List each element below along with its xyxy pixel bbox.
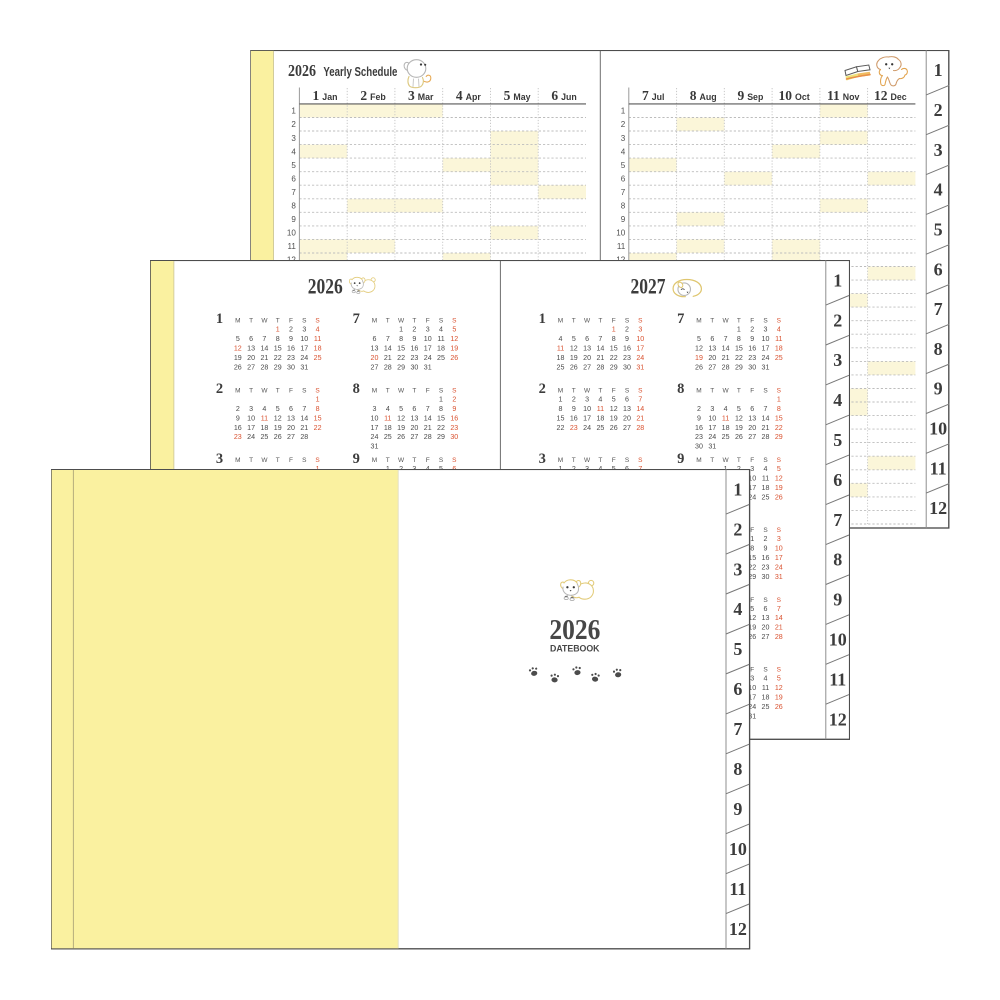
svg-text:9: 9 bbox=[291, 215, 296, 224]
svg-text:22: 22 bbox=[437, 424, 445, 432]
svg-text:16: 16 bbox=[287, 345, 295, 353]
svg-text:20: 20 bbox=[748, 424, 756, 432]
svg-text:26: 26 bbox=[274, 433, 282, 441]
svg-text:T: T bbox=[386, 387, 390, 394]
svg-text:T: T bbox=[249, 318, 253, 325]
svg-text:2: 2 bbox=[412, 326, 416, 334]
svg-text:T: T bbox=[710, 387, 714, 394]
svg-text:M: M bbox=[372, 457, 377, 464]
svg-text:30: 30 bbox=[410, 363, 418, 371]
svg-text:1: 1 bbox=[216, 311, 223, 327]
svg-text:15: 15 bbox=[274, 345, 282, 353]
svg-text:29: 29 bbox=[735, 363, 743, 371]
svg-text:21: 21 bbox=[384, 354, 392, 362]
svg-text:18: 18 bbox=[260, 424, 268, 432]
svg-text:5: 5 bbox=[934, 220, 943, 240]
svg-text:3: 3 bbox=[733, 559, 742, 579]
svg-text:18: 18 bbox=[762, 694, 770, 702]
svg-text:23: 23 bbox=[762, 563, 770, 571]
svg-text:8: 8 bbox=[733, 759, 742, 779]
svg-text:19: 19 bbox=[735, 424, 743, 432]
svg-text:12: 12 bbox=[729, 919, 747, 939]
svg-text:1: 1 bbox=[833, 270, 842, 290]
svg-text:30: 30 bbox=[287, 363, 295, 371]
svg-text:27: 27 bbox=[247, 363, 255, 371]
svg-text:5: 5 bbox=[291, 161, 296, 170]
svg-text:9: 9 bbox=[833, 590, 842, 610]
svg-text:S: S bbox=[777, 457, 782, 464]
svg-text:24: 24 bbox=[762, 354, 770, 362]
svg-text:19: 19 bbox=[234, 354, 242, 362]
svg-text:5: 5 bbox=[777, 675, 781, 683]
svg-text:9: 9 bbox=[737, 88, 744, 103]
svg-text:24: 24 bbox=[708, 433, 716, 441]
svg-text:3: 3 bbox=[291, 134, 296, 143]
svg-text:15: 15 bbox=[397, 345, 405, 353]
svg-text:9: 9 bbox=[621, 215, 626, 224]
svg-text:T: T bbox=[737, 387, 741, 394]
svg-text:18: 18 bbox=[775, 345, 783, 353]
svg-text:S: S bbox=[763, 527, 768, 534]
svg-text:22: 22 bbox=[775, 424, 783, 432]
svg-text:13: 13 bbox=[762, 614, 770, 622]
svg-text:S: S bbox=[777, 387, 782, 394]
svg-text:5: 5 bbox=[777, 465, 781, 473]
svg-text:3: 3 bbox=[934, 140, 943, 160]
svg-text:9: 9 bbox=[452, 405, 456, 413]
svg-text:7: 7 bbox=[833, 510, 842, 530]
svg-text:5: 5 bbox=[276, 405, 280, 413]
svg-text:T: T bbox=[598, 457, 602, 464]
svg-text:1: 1 bbox=[621, 107, 626, 116]
svg-text:10: 10 bbox=[287, 229, 297, 238]
svg-text:14: 14 bbox=[636, 405, 644, 413]
svg-text:6: 6 bbox=[289, 405, 293, 413]
svg-text:F: F bbox=[289, 387, 293, 394]
svg-text:S: S bbox=[625, 457, 630, 464]
svg-text:26: 26 bbox=[397, 433, 405, 441]
svg-text:6: 6 bbox=[733, 679, 742, 699]
svg-text:T: T bbox=[710, 318, 714, 325]
svg-text:10: 10 bbox=[762, 335, 770, 343]
svg-text:W: W bbox=[398, 318, 405, 325]
svg-text:Oct: Oct bbox=[795, 92, 810, 102]
svg-text:T: T bbox=[412, 387, 416, 394]
svg-text:11: 11 bbox=[729, 879, 746, 899]
svg-text:17: 17 bbox=[775, 554, 783, 562]
svg-text:3: 3 bbox=[302, 326, 306, 334]
svg-text:5: 5 bbox=[833, 430, 842, 450]
svg-text:T: T bbox=[276, 387, 280, 394]
svg-text:13: 13 bbox=[287, 414, 295, 422]
svg-text:T: T bbox=[249, 457, 253, 464]
svg-text:Nov: Nov bbox=[843, 92, 860, 102]
svg-text:3: 3 bbox=[585, 395, 589, 403]
svg-text:17: 17 bbox=[371, 424, 379, 432]
svg-text:23: 23 bbox=[410, 354, 418, 362]
svg-text:25: 25 bbox=[775, 354, 783, 362]
svg-text:2026: 2026 bbox=[288, 61, 316, 80]
svg-text:7: 7 bbox=[302, 405, 306, 413]
svg-text:4: 4 bbox=[724, 405, 728, 413]
svg-text:10: 10 bbox=[636, 335, 644, 343]
svg-text:21: 21 bbox=[596, 354, 604, 362]
svg-text:M: M bbox=[558, 318, 563, 325]
svg-text:1: 1 bbox=[559, 395, 563, 403]
svg-text:8: 8 bbox=[316, 405, 320, 413]
svg-text:3: 3 bbox=[373, 405, 377, 413]
svg-text:3: 3 bbox=[833, 350, 842, 370]
svg-text:28: 28 bbox=[596, 363, 604, 371]
svg-text:12: 12 bbox=[610, 405, 618, 413]
svg-text:31: 31 bbox=[708, 443, 716, 451]
svg-text:Aug: Aug bbox=[700, 92, 717, 102]
svg-text:S: S bbox=[777, 667, 782, 674]
svg-text:15: 15 bbox=[314, 414, 322, 422]
svg-text:S: S bbox=[638, 318, 643, 325]
svg-text:3: 3 bbox=[539, 451, 546, 467]
svg-text:27: 27 bbox=[410, 433, 418, 441]
svg-text:28: 28 bbox=[260, 363, 268, 371]
svg-text:3: 3 bbox=[249, 405, 253, 413]
svg-text:20: 20 bbox=[583, 354, 591, 362]
svg-text:2027: 2027 bbox=[631, 274, 666, 299]
svg-text:23: 23 bbox=[748, 354, 756, 362]
svg-text:4: 4 bbox=[934, 180, 943, 200]
svg-text:27: 27 bbox=[583, 363, 591, 371]
svg-text:20: 20 bbox=[247, 354, 255, 362]
svg-text:8: 8 bbox=[690, 88, 697, 103]
svg-text:7: 7 bbox=[262, 335, 266, 343]
svg-text:1: 1 bbox=[539, 311, 546, 327]
svg-text:F: F bbox=[750, 318, 754, 325]
svg-text:T: T bbox=[572, 387, 576, 394]
svg-text:30: 30 bbox=[762, 573, 770, 581]
svg-text:12: 12 bbox=[274, 414, 282, 422]
svg-text:9: 9 bbox=[625, 335, 629, 343]
svg-text:23: 23 bbox=[623, 354, 631, 362]
svg-text:21: 21 bbox=[775, 624, 783, 632]
svg-text:3: 3 bbox=[216, 451, 223, 467]
svg-text:W: W bbox=[398, 387, 405, 394]
svg-text:29: 29 bbox=[610, 363, 618, 371]
svg-text:25: 25 bbox=[722, 433, 730, 441]
svg-text:6: 6 bbox=[373, 335, 377, 343]
svg-text:11: 11 bbox=[557, 345, 564, 353]
svg-text:W: W bbox=[398, 457, 405, 464]
svg-text:6: 6 bbox=[621, 174, 626, 183]
svg-text:19: 19 bbox=[397, 424, 405, 432]
svg-text:9: 9 bbox=[289, 335, 293, 343]
svg-text:24: 24 bbox=[775, 563, 783, 571]
svg-text:8: 8 bbox=[353, 381, 360, 397]
svg-text:12: 12 bbox=[929, 498, 947, 518]
svg-text:11: 11 bbox=[314, 335, 321, 343]
svg-text:10: 10 bbox=[300, 335, 308, 343]
svg-text:S: S bbox=[763, 667, 768, 674]
svg-text:16: 16 bbox=[762, 554, 770, 562]
svg-text:F: F bbox=[612, 457, 616, 464]
svg-text:S: S bbox=[777, 318, 782, 325]
svg-text:12: 12 bbox=[829, 709, 847, 729]
svg-text:30: 30 bbox=[623, 363, 631, 371]
svg-text:1: 1 bbox=[291, 107, 296, 116]
svg-text:17: 17 bbox=[247, 424, 255, 432]
svg-text:26: 26 bbox=[735, 433, 743, 441]
svg-text:26: 26 bbox=[450, 354, 458, 362]
svg-text:8: 8 bbox=[439, 405, 443, 413]
svg-text:9: 9 bbox=[764, 545, 768, 553]
svg-text:S: S bbox=[315, 457, 320, 464]
svg-text:F: F bbox=[750, 387, 754, 394]
svg-text:S: S bbox=[763, 597, 768, 604]
svg-text:6: 6 bbox=[291, 174, 296, 183]
svg-text:T: T bbox=[276, 457, 280, 464]
svg-text:14: 14 bbox=[722, 345, 730, 353]
svg-text:15: 15 bbox=[557, 414, 565, 422]
svg-text:11: 11 bbox=[930, 458, 947, 478]
svg-text:20: 20 bbox=[287, 424, 295, 432]
svg-text:11: 11 bbox=[722, 414, 729, 422]
svg-text:29: 29 bbox=[437, 433, 445, 441]
svg-text:4: 4 bbox=[386, 405, 390, 413]
svg-text:2026: 2026 bbox=[549, 615, 600, 646]
svg-text:28: 28 bbox=[762, 433, 770, 441]
svg-text:3: 3 bbox=[777, 535, 781, 543]
svg-text:M: M bbox=[235, 457, 240, 464]
svg-text:11: 11 bbox=[827, 88, 840, 103]
svg-text:5: 5 bbox=[572, 335, 576, 343]
svg-text:6: 6 bbox=[249, 335, 253, 343]
svg-text:S: S bbox=[763, 457, 768, 464]
svg-text:10: 10 bbox=[929, 419, 947, 439]
svg-text:28: 28 bbox=[636, 424, 644, 432]
svg-text:21: 21 bbox=[424, 424, 432, 432]
svg-text:9: 9 bbox=[353, 451, 360, 467]
svg-text:29: 29 bbox=[775, 433, 783, 441]
svg-text:Yearly Schedule: Yearly Schedule bbox=[323, 65, 397, 79]
svg-text:S: S bbox=[302, 457, 307, 464]
svg-text:Feb: Feb bbox=[370, 92, 386, 102]
svg-text:15: 15 bbox=[735, 345, 743, 353]
svg-text:27: 27 bbox=[762, 633, 770, 641]
svg-text:10: 10 bbox=[583, 405, 591, 413]
svg-text:25: 25 bbox=[762, 703, 770, 711]
svg-text:W: W bbox=[261, 387, 268, 394]
svg-text:S: S bbox=[315, 387, 320, 394]
svg-text:6: 6 bbox=[412, 405, 416, 413]
svg-text:8: 8 bbox=[737, 335, 741, 343]
svg-text:18: 18 bbox=[557, 354, 565, 362]
svg-text:27: 27 bbox=[623, 424, 631, 432]
svg-text:19: 19 bbox=[570, 354, 578, 362]
svg-text:7: 7 bbox=[426, 405, 430, 413]
svg-text:9: 9 bbox=[697, 414, 701, 422]
svg-text:1: 1 bbox=[399, 326, 403, 334]
svg-text:9: 9 bbox=[412, 335, 416, 343]
svg-text:8: 8 bbox=[399, 335, 403, 343]
svg-text:19: 19 bbox=[775, 694, 783, 702]
svg-text:S: S bbox=[625, 387, 630, 394]
svg-text:W: W bbox=[261, 318, 268, 325]
svg-text:T: T bbox=[412, 318, 416, 325]
svg-text:5: 5 bbox=[621, 161, 626, 170]
svg-text:3: 3 bbox=[426, 326, 430, 334]
svg-text:M: M bbox=[558, 457, 563, 464]
svg-text:8: 8 bbox=[934, 339, 943, 359]
svg-text:10: 10 bbox=[708, 414, 716, 422]
svg-text:31: 31 bbox=[424, 363, 432, 371]
svg-text:11: 11 bbox=[617, 242, 626, 251]
svg-text:20: 20 bbox=[623, 414, 631, 422]
svg-text:18: 18 bbox=[722, 424, 730, 432]
svg-text:M: M bbox=[696, 387, 701, 394]
svg-text:28: 28 bbox=[300, 433, 308, 441]
svg-text:2: 2 bbox=[289, 326, 293, 334]
svg-text:2: 2 bbox=[764, 535, 768, 543]
svg-text:14: 14 bbox=[300, 414, 308, 422]
svg-text:16: 16 bbox=[410, 345, 418, 353]
svg-text:31: 31 bbox=[636, 363, 644, 371]
svg-text:7: 7 bbox=[677, 311, 684, 327]
svg-text:2: 2 bbox=[625, 326, 629, 334]
svg-text:S: S bbox=[452, 318, 457, 325]
svg-text:23: 23 bbox=[695, 433, 703, 441]
svg-text:3: 3 bbox=[764, 326, 768, 334]
svg-text:18: 18 bbox=[314, 345, 322, 353]
svg-text:T: T bbox=[572, 318, 576, 325]
svg-text:8: 8 bbox=[833, 550, 842, 570]
svg-text:W: W bbox=[584, 318, 591, 325]
svg-text:S: S bbox=[439, 387, 444, 394]
svg-text:16: 16 bbox=[234, 424, 242, 432]
svg-text:14: 14 bbox=[762, 414, 770, 422]
svg-text:6: 6 bbox=[750, 405, 754, 413]
svg-text:5: 5 bbox=[737, 405, 741, 413]
svg-text:17: 17 bbox=[300, 345, 308, 353]
svg-text:1: 1 bbox=[612, 326, 616, 334]
svg-text:M: M bbox=[696, 457, 701, 464]
svg-text:T: T bbox=[276, 318, 280, 325]
svg-text:16: 16 bbox=[570, 414, 578, 422]
svg-text:25: 25 bbox=[762, 494, 770, 502]
svg-text:14: 14 bbox=[260, 345, 268, 353]
svg-text:6: 6 bbox=[710, 335, 714, 343]
svg-text:10: 10 bbox=[371, 414, 379, 422]
svg-text:S: S bbox=[763, 387, 768, 394]
svg-text:16: 16 bbox=[450, 414, 458, 422]
svg-text:25: 25 bbox=[384, 433, 392, 441]
svg-text:8: 8 bbox=[677, 381, 684, 397]
svg-text:20: 20 bbox=[762, 624, 770, 632]
svg-text:S: S bbox=[452, 457, 457, 464]
svg-text:T: T bbox=[412, 457, 416, 464]
svg-text:9: 9 bbox=[750, 335, 754, 343]
svg-text:11: 11 bbox=[261, 414, 268, 422]
svg-text:16: 16 bbox=[623, 345, 631, 353]
svg-text:2: 2 bbox=[733, 519, 742, 539]
svg-text:F: F bbox=[750, 457, 754, 464]
svg-text:11: 11 bbox=[762, 475, 769, 483]
svg-text:4: 4 bbox=[262, 405, 266, 413]
svg-text:2: 2 bbox=[539, 381, 546, 397]
svg-text:14: 14 bbox=[384, 345, 392, 353]
svg-text:May: May bbox=[513, 92, 530, 102]
svg-text:2: 2 bbox=[750, 326, 754, 334]
svg-text:18: 18 bbox=[384, 424, 392, 432]
svg-text:22: 22 bbox=[557, 424, 565, 432]
svg-text:11: 11 bbox=[384, 414, 391, 422]
svg-text:11: 11 bbox=[762, 684, 769, 692]
svg-text:21: 21 bbox=[722, 354, 730, 362]
svg-text:14: 14 bbox=[775, 614, 783, 622]
svg-text:S: S bbox=[452, 387, 457, 394]
svg-text:12: 12 bbox=[874, 88, 888, 103]
svg-text:22: 22 bbox=[735, 354, 743, 362]
svg-text:9: 9 bbox=[236, 414, 240, 422]
svg-text:10: 10 bbox=[829, 630, 847, 650]
svg-text:19: 19 bbox=[610, 414, 618, 422]
svg-text:12: 12 bbox=[234, 345, 242, 353]
svg-text:9: 9 bbox=[677, 451, 684, 467]
svg-text:26: 26 bbox=[695, 363, 703, 371]
svg-text:F: F bbox=[426, 387, 430, 394]
svg-text:4: 4 bbox=[764, 675, 768, 683]
svg-text:21: 21 bbox=[636, 414, 644, 422]
svg-text:14: 14 bbox=[424, 414, 432, 422]
svg-text:M: M bbox=[235, 387, 240, 394]
svg-text:W: W bbox=[723, 387, 730, 394]
svg-text:F: F bbox=[612, 387, 616, 394]
svg-text:8: 8 bbox=[777, 405, 781, 413]
svg-text:17: 17 bbox=[762, 345, 770, 353]
svg-text:2: 2 bbox=[291, 120, 296, 129]
svg-text:8: 8 bbox=[621, 202, 626, 211]
svg-text:S: S bbox=[777, 527, 782, 534]
svg-text:12: 12 bbox=[775, 684, 783, 692]
svg-text:7: 7 bbox=[934, 299, 943, 319]
svg-text:3: 3 bbox=[408, 88, 415, 103]
svg-text:19: 19 bbox=[775, 484, 783, 492]
svg-text:8: 8 bbox=[612, 335, 616, 343]
svg-text:25: 25 bbox=[314, 354, 322, 362]
svg-text:T: T bbox=[737, 457, 741, 464]
svg-text:W: W bbox=[584, 387, 591, 394]
svg-text:10: 10 bbox=[247, 414, 255, 422]
svg-text:21: 21 bbox=[762, 424, 770, 432]
svg-text:13: 13 bbox=[371, 345, 379, 353]
svg-text:3: 3 bbox=[638, 326, 642, 334]
svg-text:W: W bbox=[723, 457, 730, 464]
svg-text:11: 11 bbox=[775, 335, 782, 343]
svg-text:16: 16 bbox=[695, 424, 703, 432]
svg-text:23: 23 bbox=[234, 433, 242, 441]
svg-text:28: 28 bbox=[775, 633, 783, 641]
svg-text:12: 12 bbox=[450, 335, 458, 343]
svg-text:F: F bbox=[426, 457, 430, 464]
svg-text:6: 6 bbox=[625, 395, 629, 403]
svg-text:S: S bbox=[315, 318, 320, 325]
svg-text:4: 4 bbox=[291, 147, 296, 156]
svg-text:30: 30 bbox=[695, 443, 703, 451]
svg-text:7: 7 bbox=[353, 311, 360, 327]
svg-text:28: 28 bbox=[722, 363, 730, 371]
svg-text:S: S bbox=[625, 318, 630, 325]
svg-text:20: 20 bbox=[371, 354, 379, 362]
svg-text:7: 7 bbox=[764, 405, 768, 413]
svg-text:20: 20 bbox=[708, 354, 716, 362]
svg-text:27: 27 bbox=[287, 433, 295, 441]
